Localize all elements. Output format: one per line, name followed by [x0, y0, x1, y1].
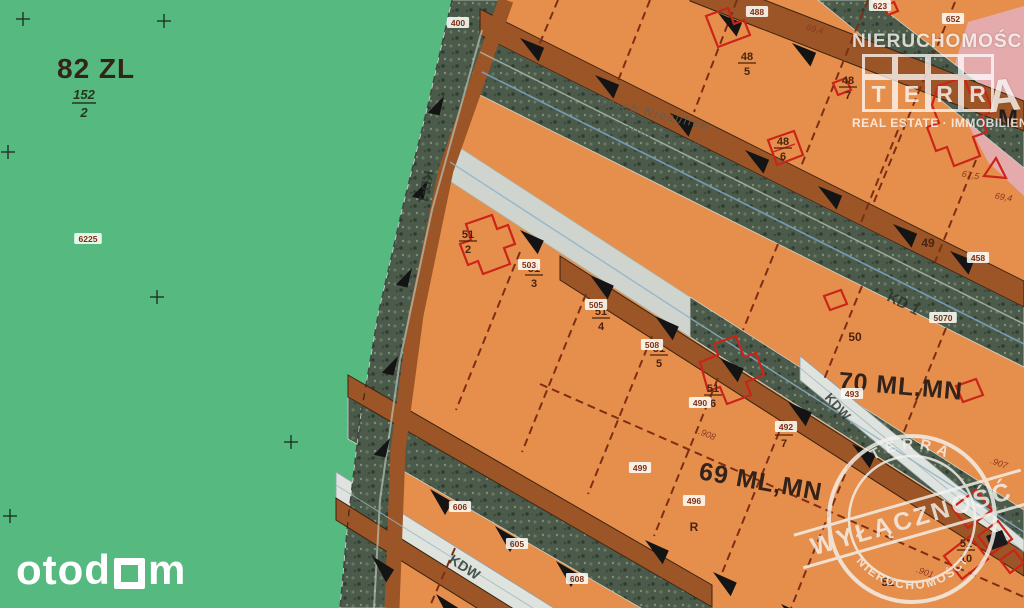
svg-text:7: 7 [845, 90, 851, 102]
svg-text:499: 499 [633, 463, 647, 473]
logo-letter: E [895, 77, 928, 112]
logo-letter: T [862, 77, 895, 112]
svg-text:400: 400 [451, 18, 465, 28]
svg-text:503: 503 [522, 260, 536, 270]
parcel-id-badge: 6225 [74, 233, 102, 244]
svg-text:51: 51 [707, 383, 719, 395]
plan-map-screenshot: 82 ZL 152 2 70 ML,MN 69 ML,MN Obręb Nies… [0, 0, 1024, 608]
parcel-id-badge: 493 [841, 388, 863, 399]
svg-text:5: 5 [656, 358, 662, 370]
svg-text:505: 505 [589, 300, 603, 310]
logo-square-icon [114, 558, 145, 589]
parcel-id-badge: 606 [449, 501, 471, 512]
logo-text-suffix: m [148, 546, 186, 594]
logo-line-nieruchomosci: NIERUCHOMOŚCI [852, 32, 1016, 52]
svg-text:4: 4 [598, 321, 605, 333]
logo-grid: T E R R A [862, 54, 994, 112]
listing-site-logo: otodm [16, 546, 186, 594]
svg-text:493: 493 [845, 389, 859, 399]
parcel-id-badge: 605 [506, 538, 528, 549]
parcel-number: 49 [921, 236, 935, 250]
svg-text:488: 488 [750, 7, 764, 17]
parcel-id-badge: 492 [775, 421, 797, 432]
parcel-id-badge: 488 [746, 6, 768, 17]
parcel-id-badge: 496 [683, 495, 705, 506]
parcel-id-badge: 490 [689, 397, 711, 408]
logo-letter: R [928, 77, 961, 112]
parcel-number: 50 [848, 330, 862, 344]
parcel-id-badge: 400 [447, 17, 469, 28]
svg-text:508: 508 [645, 340, 659, 350]
svg-text:3: 3 [531, 278, 537, 290]
svg-text:5: 5 [744, 66, 750, 78]
svg-text:458: 458 [971, 253, 985, 263]
svg-text:7: 7 [781, 438, 787, 450]
parcel-id-badge: 499 [629, 462, 651, 473]
svg-text:152: 152 [73, 87, 95, 102]
parcel-id-badge: 458 [967, 252, 989, 263]
svg-text:606: 606 [453, 502, 467, 512]
parcel-id-badge: 505 [585, 299, 607, 310]
parcel-number: R [690, 520, 699, 534]
parcel-id-badge: 5070 [929, 312, 957, 323]
svg-text:492: 492 [779, 422, 793, 432]
svg-text:48: 48 [777, 136, 789, 148]
agency-watermark-logo: NIERUCHOMOŚCI T E R R A REAL ESTATE · IM… [852, 6, 1016, 144]
logo-big-a: A [984, 66, 1023, 123]
svg-text:2: 2 [465, 244, 471, 256]
svg-text:6225: 6225 [79, 234, 98, 244]
parcel-id-badge: 508 [641, 339, 663, 350]
svg-text:605: 605 [510, 539, 524, 549]
svg-text:490: 490 [693, 398, 707, 408]
svg-text:51: 51 [462, 229, 474, 241]
svg-text:496: 496 [687, 496, 701, 506]
svg-text:48: 48 [741, 51, 753, 63]
svg-text:2: 2 [79, 105, 88, 120]
svg-text:608: 608 [570, 574, 584, 584]
zone-label-82zl: 82 ZL [57, 53, 135, 84]
svg-text:6: 6 [780, 151, 786, 163]
parcel-id-badge: 608 [566, 573, 588, 584]
svg-text:5070: 5070 [934, 313, 953, 323]
parcel-id-badge: 503 [518, 259, 540, 270]
logo-text-prefix: otod [16, 546, 111, 594]
